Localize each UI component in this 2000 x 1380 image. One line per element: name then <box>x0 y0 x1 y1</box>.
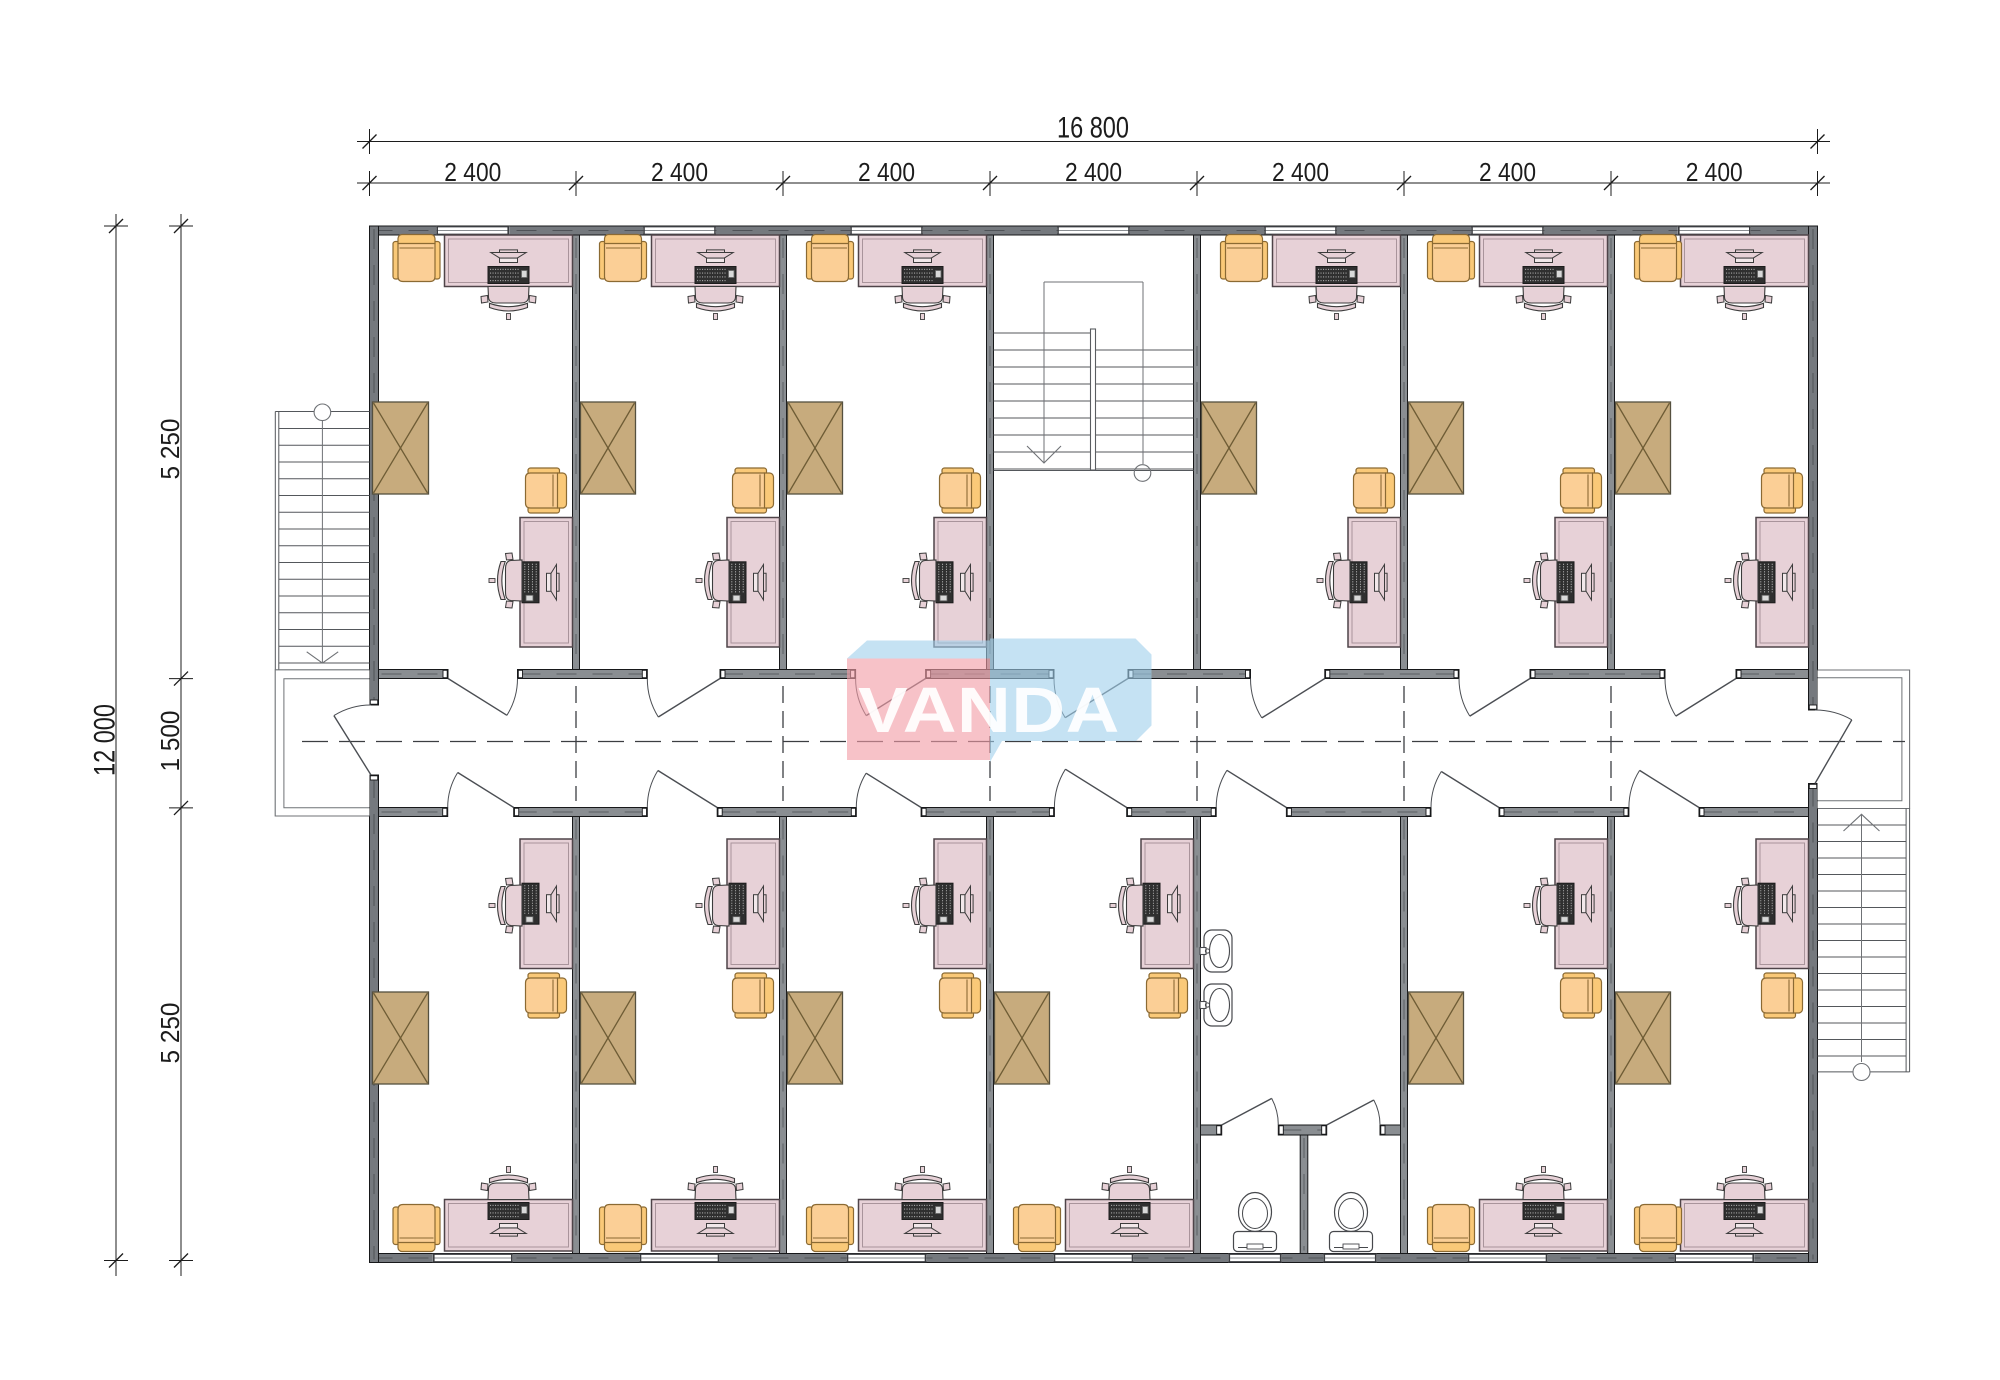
svg-text:2 400: 2 400 <box>858 157 915 187</box>
svg-text:2 400: 2 400 <box>1686 157 1743 187</box>
svg-text:1 500: 1 500 <box>155 711 185 772</box>
svg-text:5 250: 5 250 <box>155 1003 185 1064</box>
svg-text:16 800: 16 800 <box>1057 112 1129 145</box>
svg-text:5 250: 5 250 <box>155 419 185 480</box>
svg-text:2 400: 2 400 <box>1065 157 1122 187</box>
svg-text:2 400: 2 400 <box>1272 157 1329 187</box>
svg-text:2 400: 2 400 <box>1479 157 1536 187</box>
svg-text:2 400: 2 400 <box>651 157 708 187</box>
svg-text:12 000: 12 000 <box>89 704 122 776</box>
svg-text:VANDA: VANDA <box>858 674 1120 746</box>
svg-text:2 400: 2 400 <box>444 157 501 187</box>
